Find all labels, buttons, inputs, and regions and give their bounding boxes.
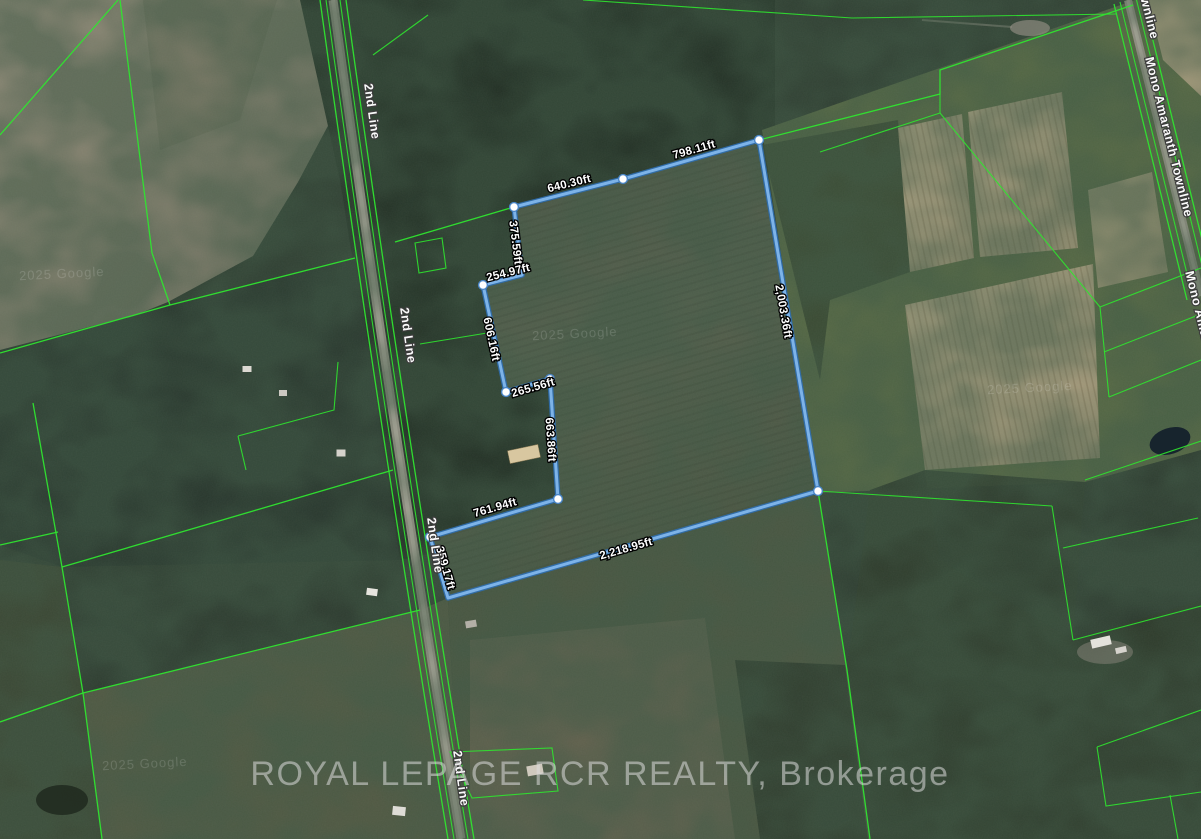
building <box>337 450 346 457</box>
vertex-handle[interactable] <box>510 203 519 212</box>
gravel-pad <box>1010 20 1050 36</box>
satellite-imagery <box>0 0 1201 839</box>
building <box>243 366 252 372</box>
dark-copse <box>36 785 88 815</box>
vertex-handle[interactable] <box>502 388 511 397</box>
building <box>392 806 406 816</box>
satellite-map-canvas[interactable]: 798.11ft 640.30ft 375.59ft 254.97ft 606.… <box>0 0 1201 839</box>
brokerage-watermark: ROYAL LEPAGE RCR REALTY, Brokerage <box>250 755 949 793</box>
vertex-handle[interactable] <box>479 281 488 290</box>
vertex-handle[interactable] <box>755 136 764 145</box>
terrain-grain <box>0 0 1201 839</box>
vertex-handle[interactable] <box>619 175 628 184</box>
vertex-handle[interactable] <box>814 487 823 496</box>
vertex-handle[interactable] <box>554 495 563 504</box>
building <box>279 390 287 396</box>
